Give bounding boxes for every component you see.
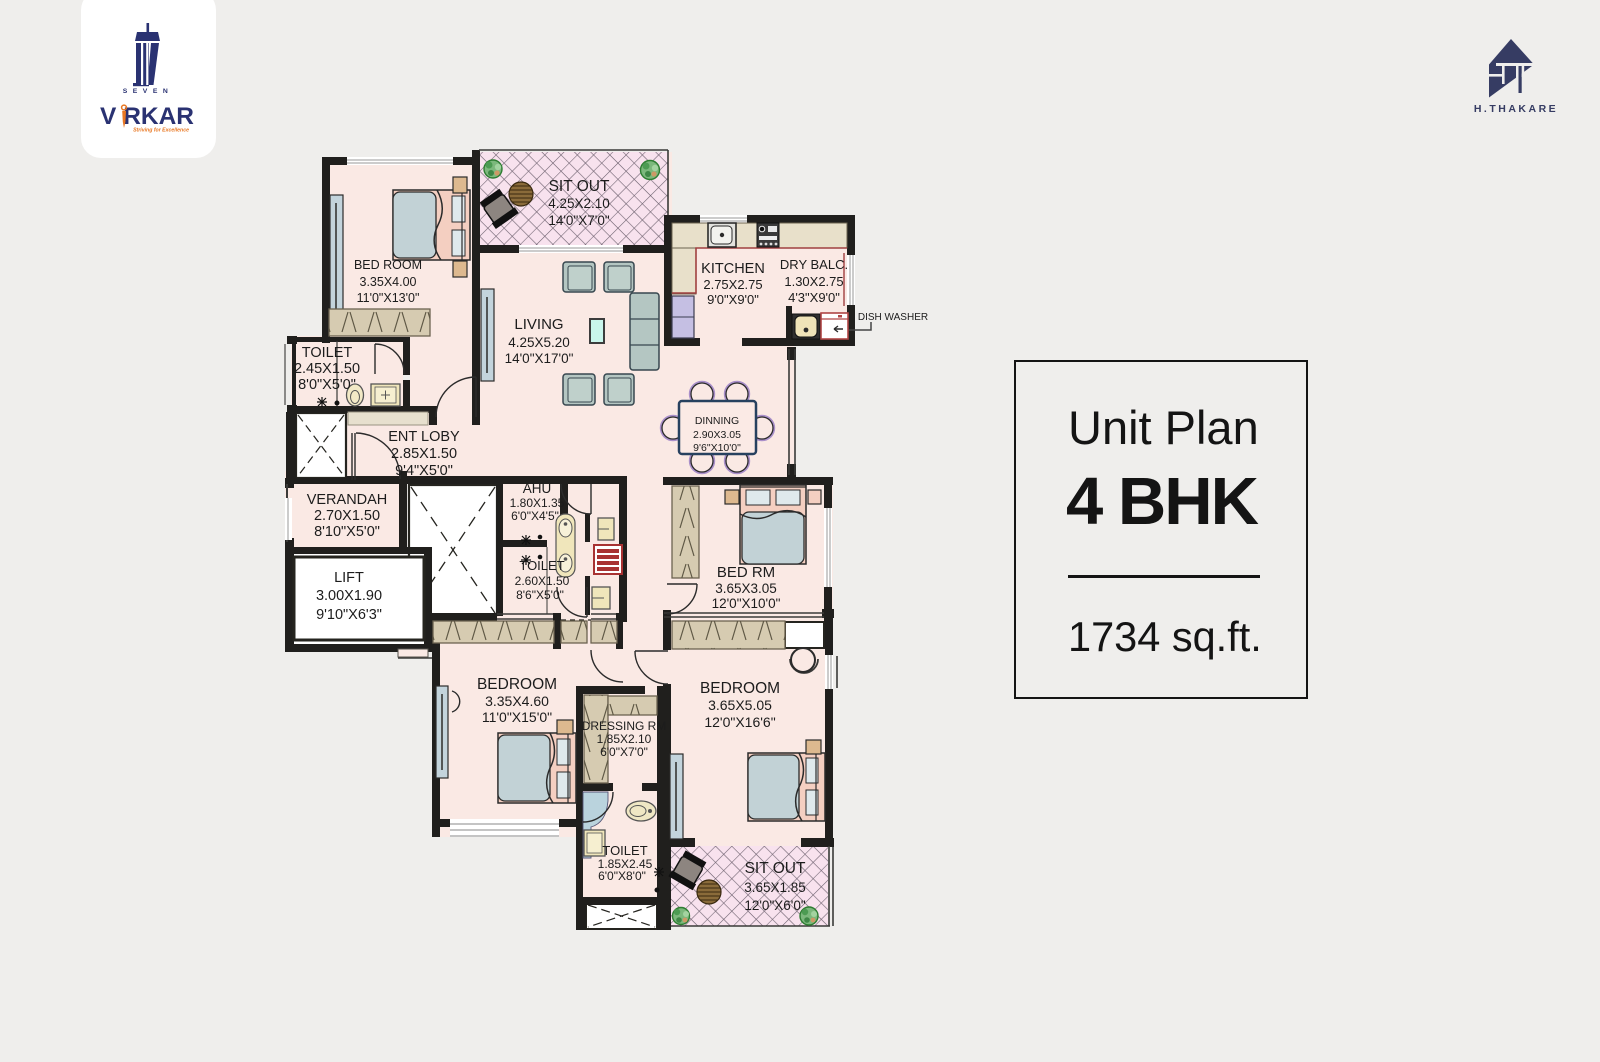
svg-text:2.85X1.50: 2.85X1.50 xyxy=(391,446,457,462)
svg-text:9'6"X10'0": 9'6"X10'0" xyxy=(693,442,741,454)
svg-text:1.80X1.35: 1.80X1.35 xyxy=(510,496,565,510)
svg-text:TOILET: TOILET xyxy=(602,843,647,858)
svg-text:3.35X4.60: 3.35X4.60 xyxy=(485,693,549,709)
svg-text:Striving for Excellence: Striving for Excellence xyxy=(133,128,189,134)
svg-text:9'10"X6'3": 9'10"X6'3" xyxy=(316,607,382,623)
svg-text:BEDROOM: BEDROOM xyxy=(700,680,780,697)
svg-text:VIRKAR: VIRKAR xyxy=(100,103,194,130)
svg-text:SIT OUT: SIT OUT xyxy=(549,178,610,195)
svg-text:12'0"X16'6": 12'0"X16'6" xyxy=(704,714,775,730)
svg-text:DRESSING RM: DRESSING RM xyxy=(582,719,667,733)
svg-text:2.75X2.75: 2.75X2.75 xyxy=(703,277,762,292)
svg-text:2.90X3.05: 2.90X3.05 xyxy=(693,429,741,441)
svg-text:3.65X1.85: 3.65X1.85 xyxy=(744,880,806,895)
svg-text:BED ROOM: BED ROOM xyxy=(354,258,422,272)
svg-text:DRY BALC.: DRY BALC. xyxy=(780,257,848,272)
svg-text:BEDROOM: BEDROOM xyxy=(477,676,557,693)
svg-text:KITCHEN: KITCHEN xyxy=(701,261,765,277)
svg-text:8'0"X5'0": 8'0"X5'0" xyxy=(298,377,356,393)
svg-text:TOILET: TOILET xyxy=(519,558,564,573)
svg-text:4.25X2.10: 4.25X2.10 xyxy=(548,196,610,211)
svg-text:6'0"X8'0": 6'0"X8'0" xyxy=(598,869,646,883)
svg-text:2.60X1.50: 2.60X1.50 xyxy=(515,574,570,588)
svg-text:SIT OUT: SIT OUT xyxy=(745,860,806,877)
svg-text:9'4"X5'0": 9'4"X5'0" xyxy=(395,463,453,479)
svg-text:LIFT: LIFT xyxy=(334,570,364,586)
svg-text:6'0"X4'5": 6'0"X4'5" xyxy=(511,509,559,523)
svg-text:8'10"X5'0": 8'10"X5'0" xyxy=(314,524,380,540)
svg-text:14'0"X17'0": 14'0"X17'0" xyxy=(505,351,574,366)
svg-text:TOILET: TOILET xyxy=(302,345,353,361)
svg-text:VERANDAH: VERANDAH xyxy=(307,492,388,508)
svg-text:1.85X2.10: 1.85X2.10 xyxy=(597,732,652,746)
svg-text:4.25X5.20: 4.25X5.20 xyxy=(508,335,570,350)
svg-text:3.00X1.90: 3.00X1.90 xyxy=(316,588,382,604)
svg-text:11'0"X13'0": 11'0"X13'0" xyxy=(357,291,420,305)
svg-text:1.30X2.75: 1.30X2.75 xyxy=(784,274,843,289)
svg-text:3.35X4.00: 3.35X4.00 xyxy=(360,275,417,289)
svg-text:6'0"X7'0": 6'0"X7'0" xyxy=(600,745,648,759)
svg-text:2.70X1.50: 2.70X1.50 xyxy=(314,508,380,524)
svg-text:SEVEN: SEVEN xyxy=(123,88,174,95)
svg-text:14'0"X7'0": 14'0"X7'0" xyxy=(548,213,609,228)
svg-text:12'0"X6'0": 12'0"X6'0" xyxy=(744,898,805,913)
svg-text:12'0"X10'0": 12'0"X10'0" xyxy=(712,596,781,611)
svg-text:4'3"X9'0": 4'3"X9'0" xyxy=(788,290,840,305)
svg-text:8'6"X5'0": 8'6"X5'0" xyxy=(516,588,564,602)
svg-text:11'0"X15'0": 11'0"X15'0" xyxy=(482,709,552,725)
svg-text:3.65X5.05: 3.65X5.05 xyxy=(708,697,772,713)
svg-text:9'0"X9'0": 9'0"X9'0" xyxy=(707,292,759,307)
svg-text:AHU: AHU xyxy=(523,481,552,496)
svg-text:BED RM: BED RM xyxy=(717,564,775,581)
svg-text:ENT LOBY: ENT LOBY xyxy=(388,429,460,445)
svg-text:DINNING: DINNING xyxy=(695,415,739,427)
svg-text:DISH WASHER: DISH WASHER xyxy=(858,312,928,323)
svg-text:LIVING: LIVING xyxy=(514,316,563,333)
svg-text:3.65X3.05: 3.65X3.05 xyxy=(715,581,777,596)
svg-text:2.45X1.50: 2.45X1.50 xyxy=(294,361,360,377)
